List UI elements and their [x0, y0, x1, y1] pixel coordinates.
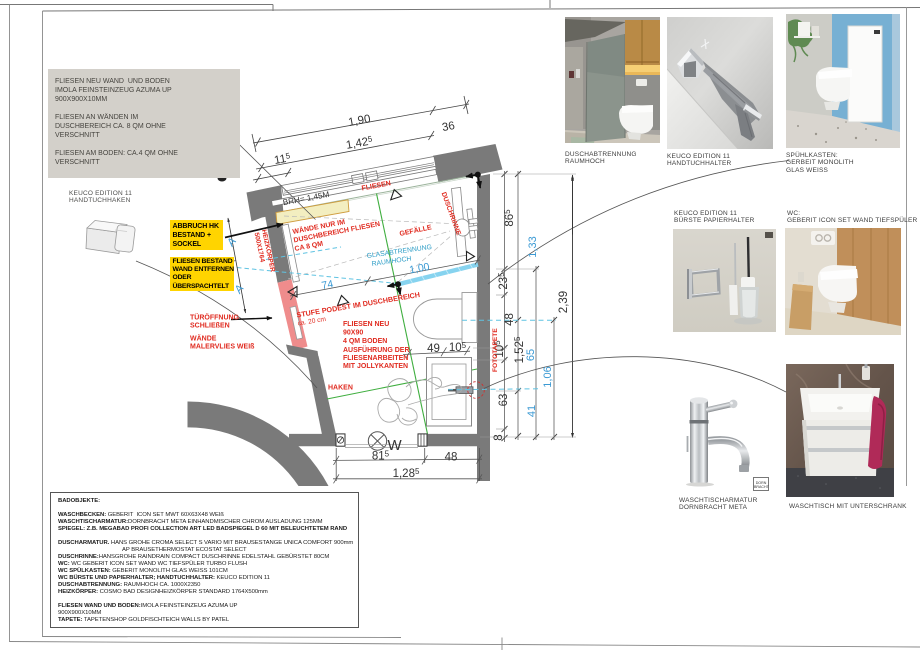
- svg-text:115: 115: [273, 151, 292, 167]
- svg-text:WÄNDE: WÄNDE: [190, 335, 217, 343]
- svg-text:FLIESEN: FLIESEN: [361, 180, 391, 192]
- svg-text:48: 48: [504, 313, 516, 326]
- svg-text:HAKEN: HAKEN: [328, 385, 353, 392]
- svg-text:SCHLIEßEN: SCHLIEßEN: [190, 323, 230, 330]
- svg-text:MALERVLIES WEIß: MALERVLIES WEIß: [190, 344, 255, 351]
- svg-text:48: 48: [445, 452, 458, 464]
- svg-text:865: 865: [503, 209, 516, 227]
- svg-text:90X90: 90X90: [343, 330, 363, 337]
- svg-text:FLIESEN NEU: FLIESEN NEU: [343, 321, 389, 328]
- svg-text:A: A: [232, 283, 247, 297]
- svg-text:65: 65: [525, 349, 537, 361]
- svg-text:74: 74: [321, 278, 335, 292]
- svg-text:4 QM BODEN: 4 QM BODEN: [343, 338, 387, 345]
- svg-text:8: 8: [493, 434, 505, 440]
- svg-text:1,425: 1,425: [345, 134, 374, 152]
- svg-text:36: 36: [441, 120, 456, 134]
- svg-text:MIT JOLLYKANTEN: MIT JOLLYKANTEN: [343, 363, 408, 370]
- svg-text:63: 63: [498, 394, 510, 407]
- svg-text:FOTOTAPETE: FOTOTAPETE: [492, 328, 499, 372]
- svg-text:235: 235: [497, 272, 510, 290]
- svg-text:2,39: 2,39: [558, 291, 570, 313]
- svg-text:1,33: 1,33: [527, 236, 539, 257]
- svg-text:1,90: 1,90: [347, 113, 371, 129]
- svg-text:41: 41: [526, 405, 538, 417]
- svg-text:TÜRÖFFNUNG: TÜRÖFFNUNG: [190, 313, 240, 322]
- svg-text:1,285: 1,285: [393, 467, 420, 480]
- svg-text:1,06: 1,06: [542, 366, 554, 387]
- svg-text:AUSFÜHRUNG DER: AUSFÜHRUNG DER: [343, 345, 410, 354]
- svg-text:W: W: [388, 437, 403, 454]
- svg-text:A: A: [224, 236, 239, 250]
- svg-text:FLIESENARBEITEN: FLIESENARBEITEN: [343, 355, 408, 362]
- svg-text:49: 49: [427, 343, 440, 355]
